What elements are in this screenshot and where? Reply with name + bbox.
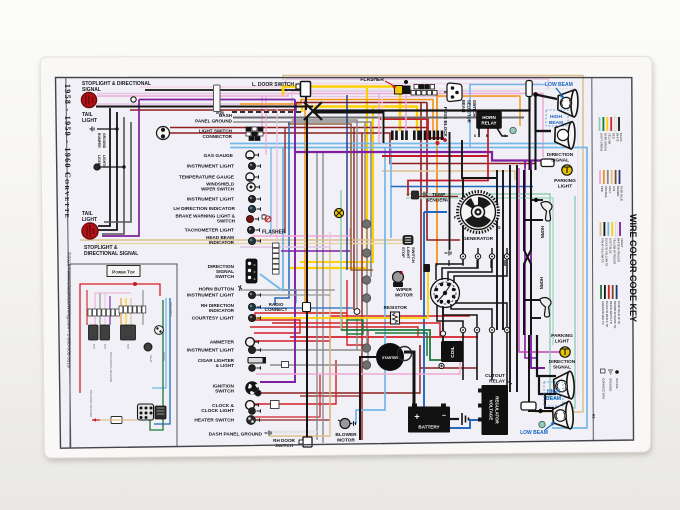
svg-text:BLACK W WHITE TR: BLACK W WHITE TR [605,301,609,327]
svg-text:TOP: TOP [103,344,106,349]
svg-text:LIGHT: LIGHT [555,339,569,345]
svg-text:SWITCH: SWITCH [472,100,477,117]
svg-text:REGULATOR: REGULATOR [495,396,500,424]
svg-text:+: + [414,412,419,422]
svg-text:TEMP: TEMP [432,192,446,198]
svg-text:BUMPER: BUMPER [97,133,101,148]
svg-text:SWITCH: SWITCH [217,219,236,224]
svg-text:VIOLET: VIOLET [620,238,624,248]
svg-text:LIGHT GREEN: LIGHT GREEN [600,133,604,151]
svg-text:COURTESY LIGHT: COURTESY LIGHT [192,316,234,322]
svg-text:PARKING: PARKING [551,333,573,339]
svg-text:BEAM: BEAM [549,120,563,126]
svg-text:DASH: DASH [219,113,233,118]
svg-text:CONNECTORS: CONNECTORS [602,378,606,399]
svg-text:GROUND: GROUND [609,378,613,392]
svg-text:WHITE: WHITE [615,133,619,142]
svg-text:INSTRUMENT LIGHT: INSTRUMENT LIGHT [187,293,234,299]
svg-text:LOW BEAM: LOW BEAM [520,430,548,436]
svg-text:PINK: PINK [600,186,604,192]
svg-text:TOP CONTROL SOLENOID: TOP CONTROL SOLENOID [109,352,112,382]
svg-text:PARKING: PARKING [554,178,576,184]
svg-text:ORANGE: ORANGE [604,186,608,198]
svg-text:LIGHT: LIGHT [406,247,411,260]
svg-text:SWITCH: SWITCH [215,274,234,280]
svg-text:CLOCK LIGHT: CLOCK LIGHT [201,408,234,414]
svg-text:SENDER: SENDER [426,198,447,204]
svg-text:63: 63 [592,414,597,419]
svg-text:GRAY: GRAY [608,186,612,194]
svg-text:SIGNAL: SIGNAL [551,158,569,164]
svg-text:WIRE COLOR CODE KEY: WIRE COLOR CODE KEY [628,214,638,322]
svg-text:–: – [442,413,446,420]
svg-text:CONNECTOR: CONNECTOR [202,134,232,139]
svg-text:BEAM: BEAM [461,100,466,113]
svg-text:HORN: HORN [482,115,496,120]
svg-text:INSTRUMENT LIGHT: INSTRUMENT LIGHT [187,348,234,354]
svg-text:RELAY: RELAY [489,379,506,385]
svg-text:TEMPERATURE GAUGE: TEMPERATURE GAUGE [179,175,235,181]
svg-text:CONNECT: CONNECT [265,307,288,312]
svg-text:DARK BLUE: DARK BLUE [620,186,624,201]
svg-text:BEAM: BEAM [546,396,561,402]
svg-text:©2016 • www.ClassicCarWiring.c: ©2016 • www.ClassicCarWiring.com • 1-888… [65,252,72,368]
svg-text:TAN: TAN [612,186,616,191]
svg-text:RED W WHITE TR: RED W WHITE TR [609,301,613,324]
svg-text:TOP COVER SOLENOID: TOP COVER SOLENOID [89,390,92,417]
svg-text:POWER TOP: POWER TOP [112,270,135,275]
svg-text:YELLOW W TRACER: YELLOW W TRACER [612,238,616,264]
svg-text:A: A [445,198,448,203]
svg-text:RED: RED [611,133,615,139]
svg-text:LIGHT BLUE: LIGHT BLUE [609,238,613,254]
svg-text:HIGH: HIGH [547,389,560,395]
svg-text:BLACK W YELLOW TR: BLACK W YELLOW TR [605,238,609,266]
svg-text:RELAY: RELAY [149,355,152,363]
svg-text:VOLTAGE: VOLTAGE [489,400,494,421]
svg-text:STARTER: STARTER [382,356,398,360]
svg-text:INDICATOR: INDICATOR [209,308,235,313]
svg-text:CUTOUT: CUTOUT [485,373,505,379]
svg-text:HORN: HORN [539,277,544,289]
svg-text:MOTOR: MOTOR [337,438,355,444]
svg-text:RELAY: RELAY [481,121,496,126]
svg-text:TOP SWITCH: TOP SWITCH [169,302,172,317]
svg-text:INSTRUMENT LIGHT: INSTRUMENT LIGHT [187,197,234,203]
svg-text:WIPER: WIPER [396,287,412,293]
svg-text:BROWN: BROWN [616,186,620,196]
svg-text:INDICATOR: INDICATOR [209,240,235,245]
svg-text:DARK GREEN: DARK GREEN [604,133,608,151]
svg-text:YELLOW: YELLOW [608,133,612,145]
svg-text:HEATER SWITCH: HEATER SWITCH [194,418,234,424]
svg-text:FUSE BLOCK: FUSE BLOCK [443,107,448,138]
svg-text:DIRECTION: DIRECTION [547,152,574,158]
svg-text:HIGH: HIGH [550,114,563,120]
svg-text:LH DIRECTION INDICATOR: LH DIRECTION INDICATOR [173,206,235,212]
svg-text:HORN BUTTON: HORN BUTTON [199,287,235,293]
svg-text:LIGHT SWITCH: LIGHT SWITCH [199,129,233,134]
svg-text:TACHOMETER LIGHT: TACHOMETER LIGHT [185,228,234,234]
svg-text:GAS GAUGE: GAS GAUGE [204,153,234,159]
svg-text:FLASHER: FLASHER [262,230,286,236]
svg-text:SIGNAL: SIGNAL [553,365,571,371]
svg-text:& LIGHT: & LIGHT [216,363,235,368]
svg-text:BLOWER: BLOWER [335,432,357,438]
svg-text:AMMETER: AMMETER [210,340,235,346]
svg-text:BATTERY: BATTERY [418,425,439,430]
svg-text:TAN W YELLOW TR: TAN W YELLOW TR [601,238,605,263]
svg-text:STOP: STOP [401,247,406,258]
svg-text:WHITE W TRACER: WHITE W TRACER [616,238,620,262]
svg-text:1958 - 1959 - 1960 CORVETTE: 1958 - 1959 - 1960 CORVETTE [63,84,72,219]
svg-text:DIRECTION: DIRECTION [549,359,576,365]
svg-text:SELECTOR: SELECTOR [467,100,472,123]
svg-text:SPLICE: SPLICE [615,378,619,389]
svg-text:INSTRUMENT LIGHT: INSTRUMENT LIGHT [187,164,234,170]
svg-text:DIRECTIONAL SIGNAL: DIRECTIONAL SIGNAL [84,251,138,257]
svg-text:GREEN W RED TR: GREEN W RED TR [601,301,605,325]
svg-text:LIGHT: LIGHT [558,184,572,190]
svg-text:SWITCH: SWITCH [411,247,416,263]
svg-text:MOTOR: MOTOR [162,352,165,361]
svg-text:LIGHT: LIGHT [82,118,97,124]
svg-text:DARK BLUE W TR: DARK BLUE W TR [617,301,621,324]
svg-text:WIPER SWITCH: WIPER SWITCH [201,187,234,192]
svg-text:COIL: COIL [450,346,456,358]
svg-text:HORN: HORN [540,226,545,238]
svg-text:BLACK: BLACK [619,133,623,142]
svg-text:RESISTOR: RESISTOR [384,305,408,310]
svg-text:SIGNAL: SIGNAL [82,87,101,93]
svg-text:GROUND: GROUND [102,133,106,149]
svg-text:LIGHTS: LIGHTS [102,155,106,168]
svg-text:GENERATOR: GENERATOR [463,236,494,242]
svg-text:DASH PANEL GROUND: DASH PANEL GROUND [209,432,263,438]
svg-text:G: G [497,225,500,230]
svg-text:TOP: TOP [126,344,129,349]
svg-text:LICENSE: LICENSE [97,155,101,170]
svg-text:SWITCH: SWITCH [215,389,234,395]
svg-text:MOTOR: MOTOR [395,293,413,299]
svg-text:L. DOOR SWITCH: L. DOOR SWITCH [252,82,294,88]
svg-text:PANEL GROUND: PANEL GROUND [195,119,233,124]
svg-text:TOP: TOP [92,344,95,349]
svg-text:F: F [454,215,457,220]
svg-text:LOW BEAM: LOW BEAM [545,82,573,88]
svg-text:LIGHT: LIGHT [82,217,97,223]
svg-text:BROWN W WHITE TR: BROWN W WHITE TR [613,301,617,328]
